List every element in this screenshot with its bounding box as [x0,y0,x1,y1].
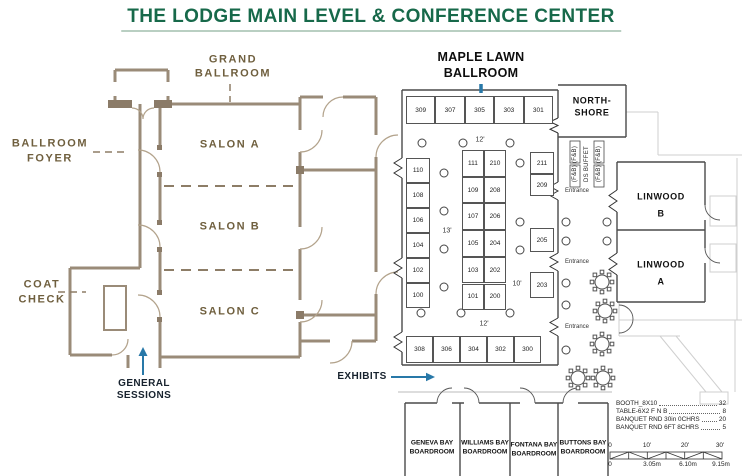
ballroom-foyer-label-line1: BALLROOM [12,139,88,150]
cocktail-table-icon [440,169,448,177]
salon-a-label: SALON A [200,140,260,151]
cocktail-table-icon [516,246,524,254]
entrance-label-1: Entrance [565,188,589,194]
cocktail-table-icon [603,237,611,245]
ballroom-foyer-label-line2: FOYER [27,154,73,165]
legend-leader [669,413,720,414]
booth-cell: 101 [462,284,484,311]
legend: BOOTH_8X10 32 TABLE-6X2 F N B 8 BANQUET … [616,399,726,431]
banquet-table-icon [590,270,614,294]
exhibits-arrowhead [426,373,435,381]
legend-label: TABLE-6X2 F N B [616,408,667,415]
exhibits-label: EXHIBITS [337,372,386,382]
cocktail-table-icon [562,279,570,287]
booth-cell: 204 [484,230,506,257]
cocktail-table-icon [516,159,524,167]
banquet-table-icon [591,366,615,390]
buttons-bay-label-line2: BOARDROOM [561,450,606,457]
general-sessions-arrowhead [139,347,148,356]
double-door-icon [609,190,617,212]
fontana-bay-label-line2: BOARDROOM [512,452,557,459]
cocktail-table-icon [562,218,570,226]
grand-ballroom-label-line2: BALLROOM [195,69,271,80]
booth-cell: 301 [524,96,553,124]
north-shore-label-line1: NORTH- [573,97,612,106]
double-door-icon [609,253,617,275]
cocktail-table-icon [603,218,611,226]
cocktail-table-icon [440,283,448,291]
booth-cell: 303 [494,96,523,124]
double-door-icon [394,158,402,178]
cocktail-table-icon [506,309,514,317]
double-door-icon [394,258,402,278]
north-shore-label-line2: SHORE [574,109,609,118]
legend-value: 5 [722,424,726,431]
scale-meters-6: 6.10m [679,461,697,468]
cocktail-table-icon [562,346,570,354]
cocktail-table-icon [418,139,426,147]
booth-cell: 100 [406,283,430,308]
maple-lawn-label-line1: MAPLE LAWN [437,51,524,64]
banquet-table-icon [566,366,590,390]
williams-bay-label-line2: BOARDROOM [463,450,508,457]
banquet-table-icon [593,299,617,323]
double-door-icon [550,253,558,271]
booth-cell: 309 [406,96,435,124]
cocktail-table-icons [417,139,611,354]
legend-value: 8 [722,408,726,415]
booth-cell: 109 [462,177,484,204]
maple-lawn-label-line2: BALLROOM [444,67,519,80]
legend-leader [702,421,717,422]
geneva-bay-label-line1: GENEVA BAY [411,441,453,448]
booth-cell: 200 [484,284,506,311]
scale-feet-0: 0 [608,442,612,449]
booth-cell: 300 [514,336,541,363]
coat-check-label-line2: CHECK [18,295,65,306]
cocktail-table-icon [440,245,448,253]
booth-cell: 110 [406,158,430,183]
entrance-label-2: Entrance [565,259,589,265]
coat-check-label-line1: COAT [24,280,61,291]
legend-row-table: TABLE-6X2 F N B 8 [616,407,726,415]
legend-label: BOOTH_8X10 [616,400,657,407]
cocktail-table-icon [506,139,514,147]
legend-value: 32 [719,400,726,407]
booth-cell: 210 [484,150,506,177]
cocktail-table-icon [417,309,425,317]
booth-cell: 305 [465,96,494,124]
cocktail-table-icon [457,309,465,317]
booth-cell: 205 [530,228,554,252]
salon-c-label: SALON C [200,307,261,318]
general-sessions-label-line2: SESSIONS [117,391,171,401]
entrance-label-3: Entrance [565,324,589,330]
booth-cell: 302 [487,336,514,363]
scale-meters-0: 0 [608,461,612,468]
booth-cell: 111 [462,150,484,177]
legend-label: BANQUET RND 6FT 8CHRS [616,424,699,431]
general-sessions-label-line1: GENERAL [118,379,170,389]
linwood-b-label-line1: LINWOOD [637,193,685,202]
booth-cell: 208 [484,177,506,204]
buffet-side-label-left: (F&B) (F&B) [572,146,578,182]
aisle-width-top: 12' [475,137,484,144]
legend-row-banquet-6ft: BANQUET RND 6FT 8CHRS 5 [616,423,726,431]
booth-cell: 308 [406,336,433,363]
aisle-width-bottom: 12' [479,321,488,328]
booth-cell: 105 [462,230,484,257]
booth-cell: 211 [530,152,554,174]
scale-meters-9: 9.15m [712,461,730,468]
williams-bay-label-line1: WILLIAMS BAY [461,441,509,448]
legend-label: BANQUET RND 30in 0CHRS [616,416,700,423]
aisle-width-left: 13' [442,228,451,235]
aisle-width-right: 10' [512,281,521,288]
booth-cell: 106 [406,208,430,233]
booth-cell: 102 [406,258,430,283]
legend-row-banquet-30: BANQUET RND 30in 0CHRS 20 [616,415,726,423]
legend-leader [701,429,721,430]
grand-ballroom-label-line1: GRAND [209,55,257,66]
cocktail-table-icon [562,237,570,245]
booth-cell: 304 [460,336,487,363]
buffet-side-label-right: (F&B) (F&B) [596,146,602,182]
scale-meters-3: 3.05m [643,461,661,468]
ds-buffet-label: DS BUFFET [584,146,590,182]
linwood-a-label-line1: LINWOOD [637,261,685,270]
scale-bar [610,452,722,459]
scale-feet-30: 30' [716,442,724,449]
booth-cell: 202 [484,257,506,284]
lodge-walls [70,70,376,368]
banquet-table-icon [590,332,614,356]
legend-row-booth: BOOTH_8X10 32 [616,399,726,407]
cocktail-table-icon [562,301,570,309]
buttons-bay-label-line1: BUTTONS BAY [560,441,607,448]
double-door-icon [550,318,558,336]
booth-cell: 103 [462,257,484,284]
cocktail-table-icon [440,207,448,215]
cocktail-table-icon [516,218,524,226]
salon-b-label: SALON B [200,222,261,233]
linwood-a-label-line2: A [657,278,664,287]
booth-cell: 107 [462,203,484,230]
linwood-b-label-line2: B [657,210,664,219]
lodge-wall-nodes [108,100,304,322]
scale-feet-10: 10' [643,442,651,449]
booth-cell: 306 [433,336,460,363]
fontana-bay-label-line1: FONTANA BAY [511,443,558,450]
booth-cell: 209 [530,174,554,196]
cocktail-table-icon [459,139,467,147]
geneva-bay-label-line2: BOARDROOM [410,450,455,457]
banquet-table-icons [566,270,617,390]
booth-cell: 203 [530,272,554,298]
booth-cell: 307 [435,96,464,124]
scale-feet-20: 20' [681,442,689,449]
legend-value: 20 [719,416,726,423]
booth-cell: 104 [406,233,430,258]
double-door-icon [394,332,402,352]
floor-plan-canvas: THE LODGE MAIN LEVEL & CONFERENCE CENTER [0,0,742,476]
legend-leader [659,405,717,406]
booth-cell: 206 [484,203,506,230]
booth-cell: 108 [406,183,430,208]
